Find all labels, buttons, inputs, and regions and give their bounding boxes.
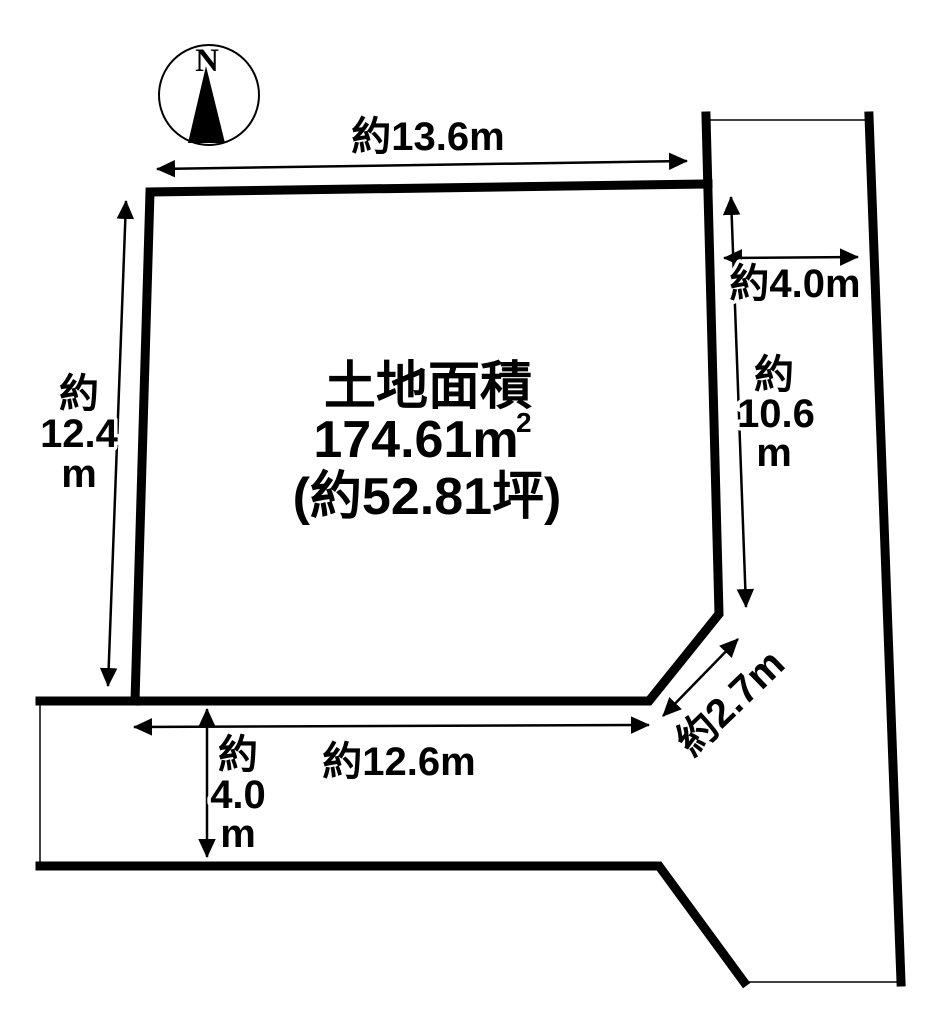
- dim-label-west-depth-line3: m: [61, 452, 97, 496]
- dim-label-west-depth-line1: 約: [59, 372, 99, 416]
- land-area-text-block: 土地面積 174.61m 2 (約52.81坪): [293, 358, 562, 526]
- dim-label-east-road-width: 約4.0m: [729, 262, 860, 306]
- dim-label-east-depth-line2: 10.6: [737, 392, 815, 436]
- dim-label-south-width: 約12.6m: [322, 740, 475, 784]
- land-plot-diagram: N 約13.6m 約 12.4 m 約4.0m 約 10.6 m 約2.7m 約…: [0, 0, 947, 1028]
- land-area-title: 土地面積: [324, 358, 532, 416]
- dim-label-south-road-width-line2: 4.0: [210, 773, 266, 817]
- land-area-value: 174.61m: [313, 411, 518, 469]
- compass-needle: [188, 66, 225, 143]
- dim-arrow-south-width: [134, 725, 649, 727]
- land-area-tsubo: (約52.81坪): [293, 468, 562, 526]
- dim-label-south-road-width: 約 4.0 m: [210, 733, 266, 856]
- dim-label-south-road-width-line3: m: [220, 812, 256, 856]
- dim-arrow-east-road-width: [724, 257, 858, 258]
- dim-arrow-top-width: [157, 161, 687, 169]
- dim-label-east-depth-line3: m: [756, 431, 792, 475]
- dim-label-east-depth: 約 10.6 m: [737, 353, 815, 475]
- dim-label-top-width: 約13.6m: [351, 115, 504, 159]
- dim-label-east-depth-line1: 約: [754, 353, 794, 397]
- east-road-east-boundary: [869, 116, 901, 982]
- dim-label-south-road-width-line1: 約: [218, 733, 258, 777]
- dim-label-west-depth: 約 12.4 m: [40, 372, 119, 496]
- dim-label-west-depth-line2: 12.4: [40, 412, 119, 456]
- south-road-south-boundary: [40, 866, 744, 982]
- land-area-value-sup: 2: [516, 407, 532, 438]
- compass-north-icon: N: [159, 43, 259, 145]
